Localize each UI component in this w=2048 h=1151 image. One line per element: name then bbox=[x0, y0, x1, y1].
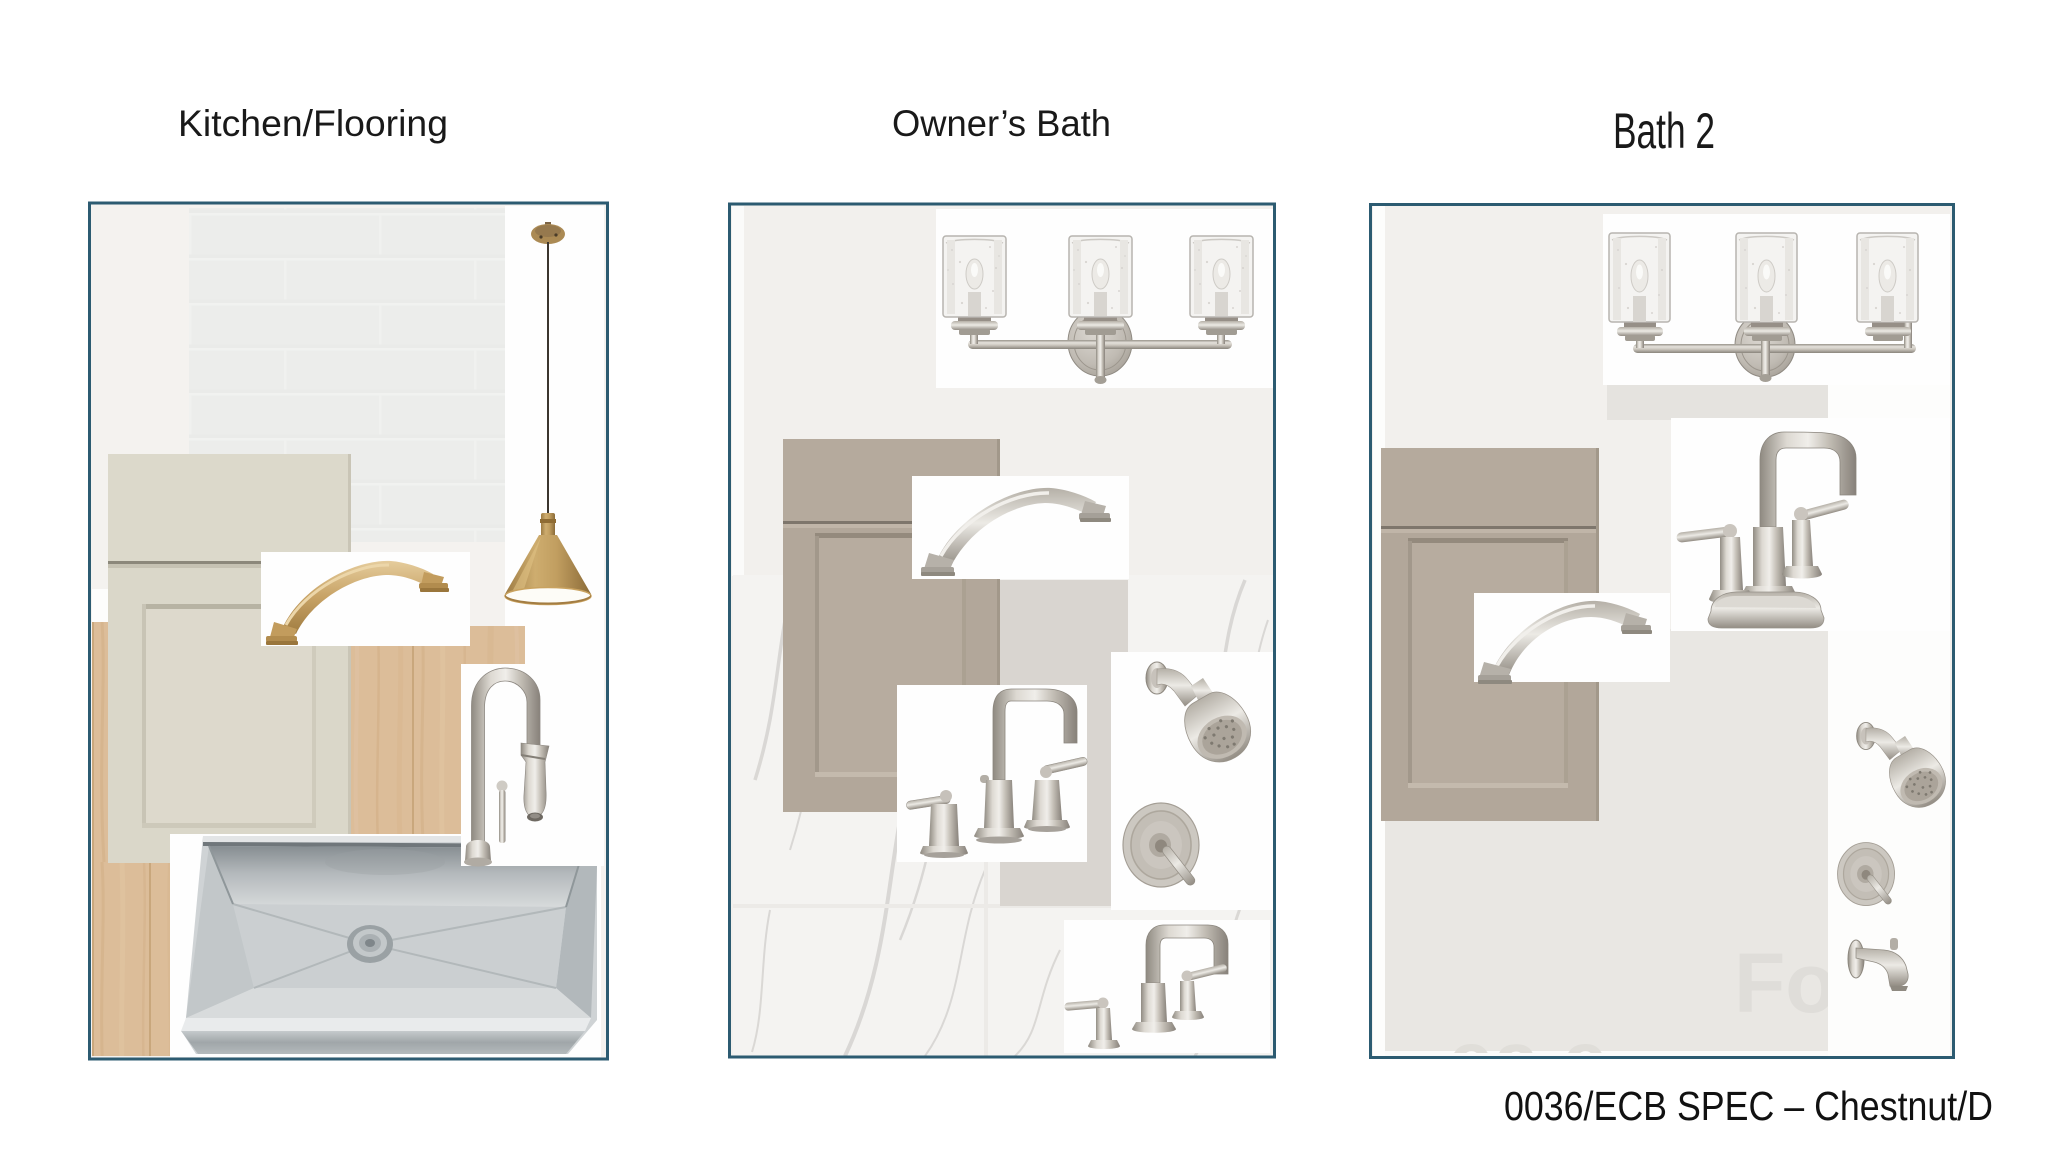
svg-text:Owner’s Bath: Owner’s Bath bbox=[892, 103, 1111, 144]
svg-text:Fo: Fo bbox=[1734, 936, 1837, 1030]
svg-text:Kitchen/Flooring: Kitchen/Flooring bbox=[178, 103, 448, 144]
svg-text:Bath 2: Bath 2 bbox=[1613, 103, 1715, 159]
svg-text:0036/ECB SPEC – Chestnut/D: 0036/ECB SPEC – Chestnut/D bbox=[1504, 1083, 1993, 1129]
